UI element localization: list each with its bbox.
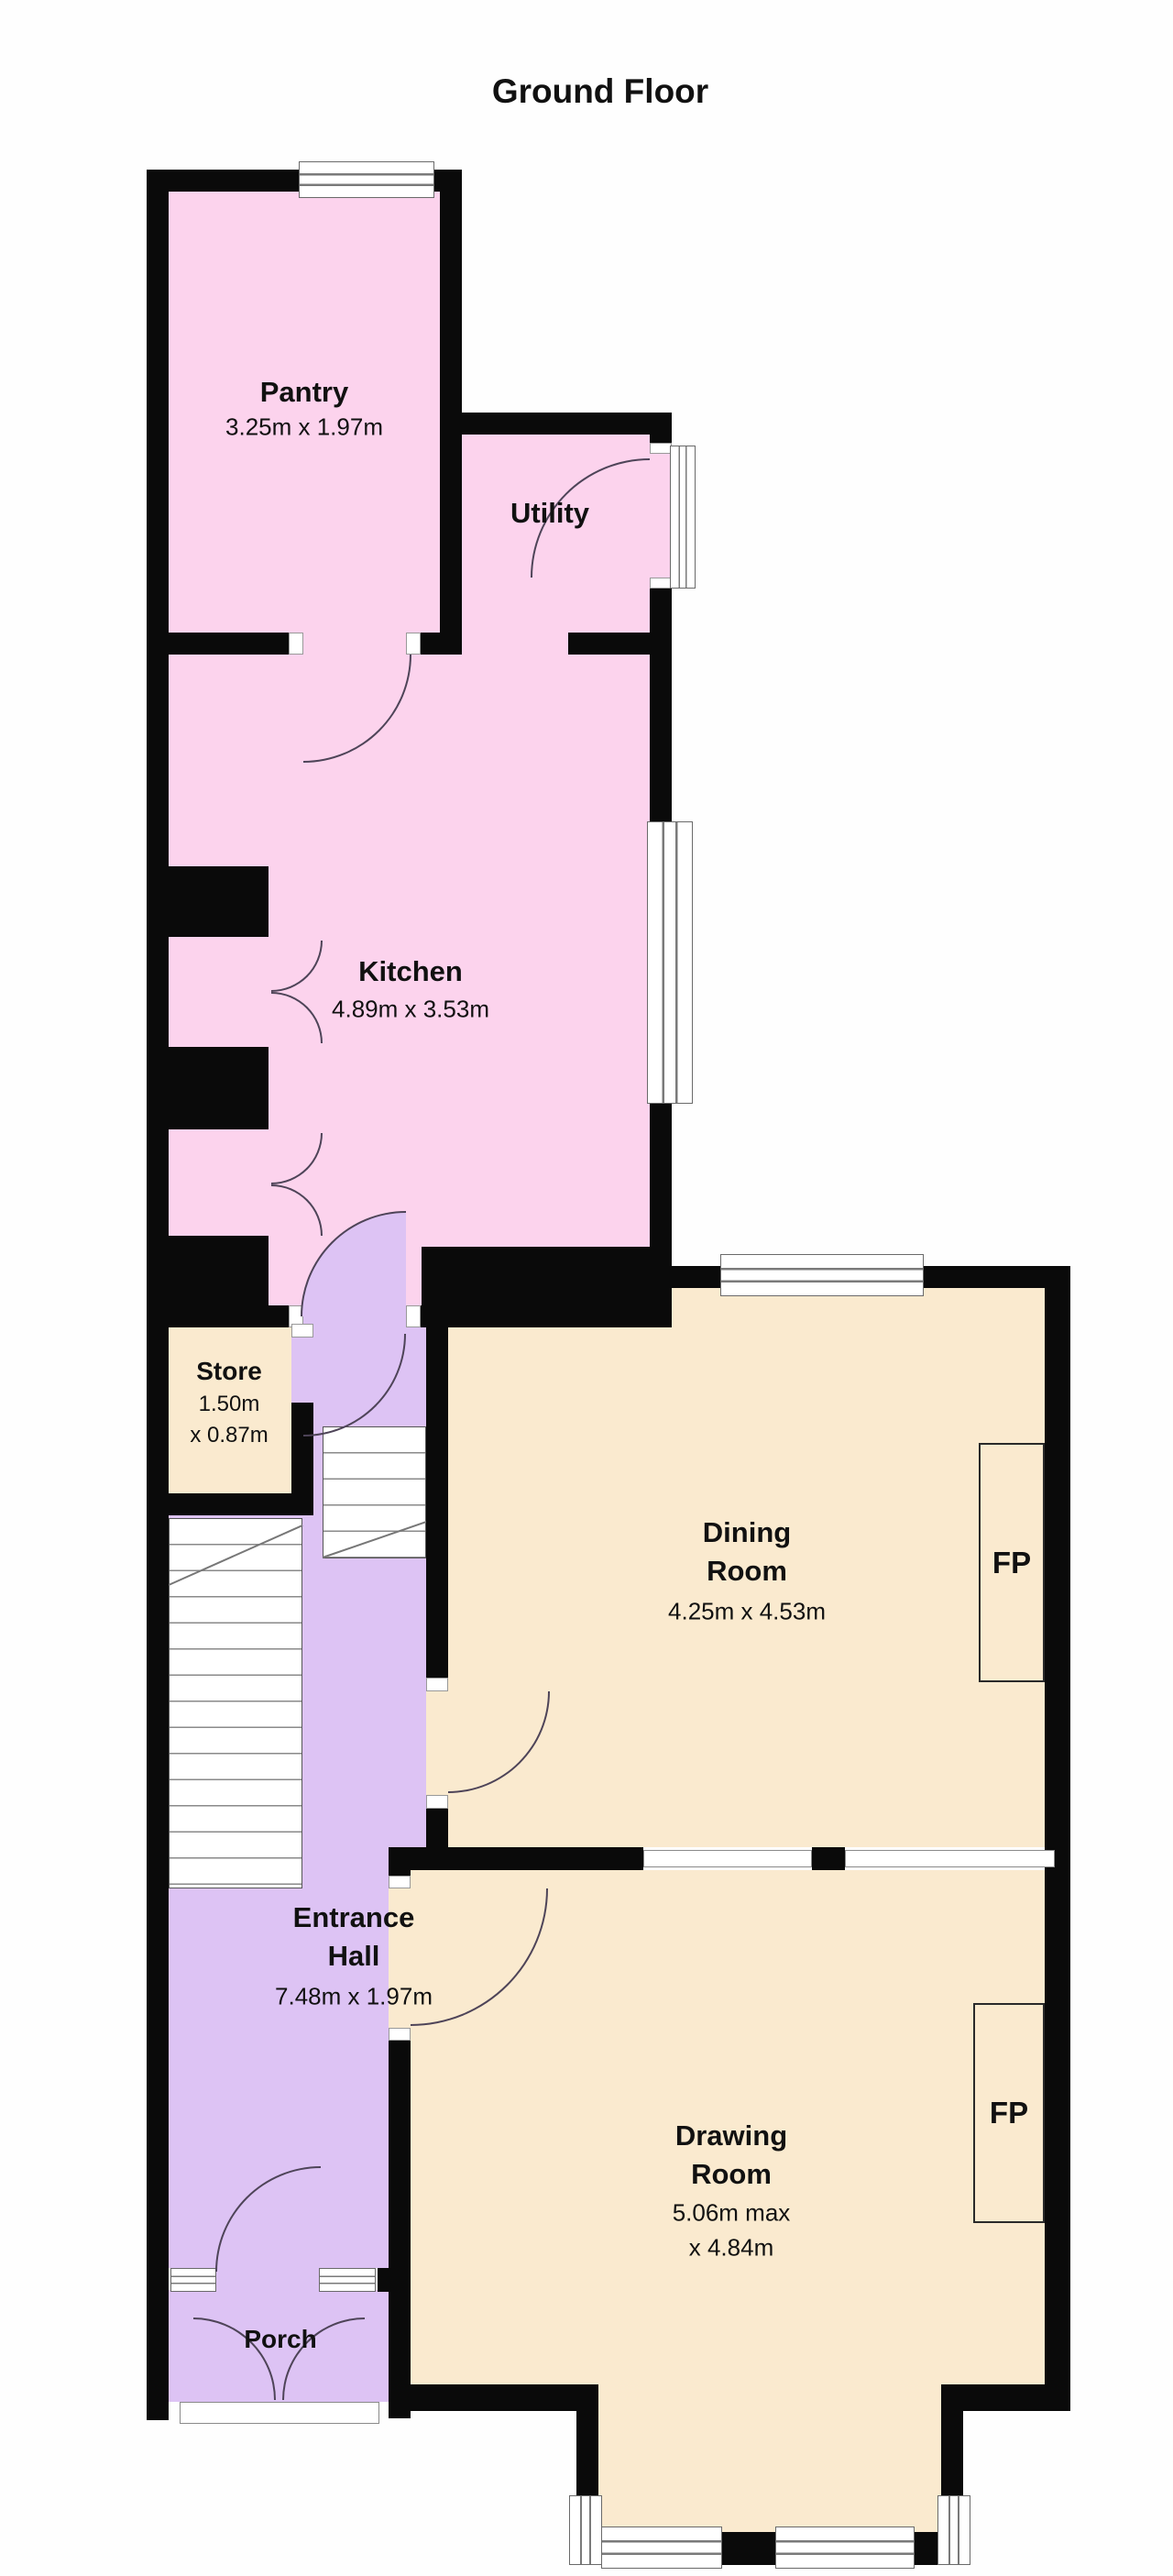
dining-label-2: Room <box>707 1555 787 1588</box>
store-dims-1: 1.50m <box>199 1392 260 1417</box>
drawing-fireplace-label: FP <box>990 2096 1028 2130</box>
drawing-fireplace: FP <box>973 2003 1045 2223</box>
dining-fireplace-label: FP <box>992 1546 1031 1580</box>
dining-dims: 4.25m x 4.53m <box>668 1598 826 1626</box>
dining-fireplace: FP <box>979 1443 1045 1682</box>
hall-label-1: Entrance <box>293 1901 415 1934</box>
kitchen-dims: 4.89m x 3.53m <box>332 996 489 1024</box>
wall-utility-top <box>462 413 672 435</box>
floorplan-page: Ground Floor <box>0 0 1173 2576</box>
pantry-door-jamb-left <box>289 633 303 655</box>
porch-label: Porch <box>244 2325 316 2354</box>
bay-window-front-right <box>775 2526 915 2569</box>
pantry-door-opening <box>303 633 406 655</box>
dining-window <box>720 1254 924 1296</box>
drawing-label-1: Drawing <box>675 2119 787 2152</box>
wall-kitchen-pier-3 <box>147 1236 269 1305</box>
drawing-door-jamb-top <box>389 1876 411 1888</box>
wall-porch-divider-stub <box>378 2268 389 2292</box>
drawing-door-jamb-bottom <box>389 2028 411 2041</box>
page-title: Ground Floor <box>492 72 708 111</box>
porch-sidelight-right <box>319 2268 376 2292</box>
wall-bay-right <box>941 2384 963 2499</box>
porch-entrance-threshold <box>180 2402 379 2424</box>
utility-door-leaf <box>670 446 696 589</box>
store-label: Store <box>196 1357 262 1386</box>
kitchen-window <box>647 821 693 1104</box>
wall-utility-bottom-stub <box>568 633 672 655</box>
dining-door-opening <box>426 1691 448 1795</box>
wall-bay-left <box>576 2384 598 2499</box>
wall-drawing-bottom-left <box>389 2384 576 2411</box>
utility-door-jamb-top <box>650 443 672 454</box>
wall-dining-drawing-left <box>426 1847 643 1870</box>
drawing-dims-2: x 4.84m <box>689 2234 774 2262</box>
bay-window-front-left <box>601 2526 722 2569</box>
wall-dining-drawing-pier <box>812 1847 845 1870</box>
porch-sidelight-left <box>170 2268 216 2292</box>
utility-door-jamb-bottom <box>650 578 672 589</box>
pantry-label: Pantry <box>260 376 348 409</box>
wall-bottom-right <box>963 2384 1070 2411</box>
bay-floor <box>598 2384 941 2532</box>
wall-store-bottom <box>147 1493 313 1515</box>
utility-door-opening <box>650 454 672 578</box>
wall-hall-door-return <box>421 1305 448 1327</box>
utility-label: Utility <box>510 497 589 530</box>
pantry-floor <box>169 192 440 633</box>
wall-store-top <box>147 1305 289 1327</box>
hall-label-2: Hall <box>328 1940 380 1973</box>
dining-drawing-threshold-right <box>845 1850 1055 1867</box>
wall-kitchen-pier-2 <box>147 1047 269 1129</box>
pantry-window <box>299 161 434 198</box>
hall-door-jamb-right <box>406 1305 421 1327</box>
kitchen-label: Kitchen <box>358 955 463 988</box>
hall-dims: 7.48m x 1.97m <box>275 1983 433 2011</box>
dining-drawing-threshold-left <box>643 1850 812 1867</box>
drawing-dims-1: 5.06m max <box>673 2199 791 2228</box>
wall-right-outer <box>1045 1266 1070 2411</box>
dining-door-jamb-bottom <box>426 1795 448 1809</box>
dining-door-jamb-top <box>426 1678 448 1691</box>
wall-pantry-right <box>440 170 462 655</box>
bay-window-right-side <box>937 2495 970 2565</box>
bay-window-left-side <box>569 2495 602 2565</box>
wall-hall-jog-stub <box>389 1847 448 1870</box>
pantry-door-jamb-right <box>406 633 421 655</box>
dining-label-1: Dining <box>703 1516 791 1549</box>
store-dims-2: x 0.87m <box>190 1423 268 1448</box>
pantry-dims: 3.25m x 1.97m <box>225 413 383 442</box>
drawing-label-2: Room <box>691 2158 772 2191</box>
staircase-lower-flight <box>169 1518 302 1888</box>
wall-kitchen-pier-1 <box>147 866 269 937</box>
